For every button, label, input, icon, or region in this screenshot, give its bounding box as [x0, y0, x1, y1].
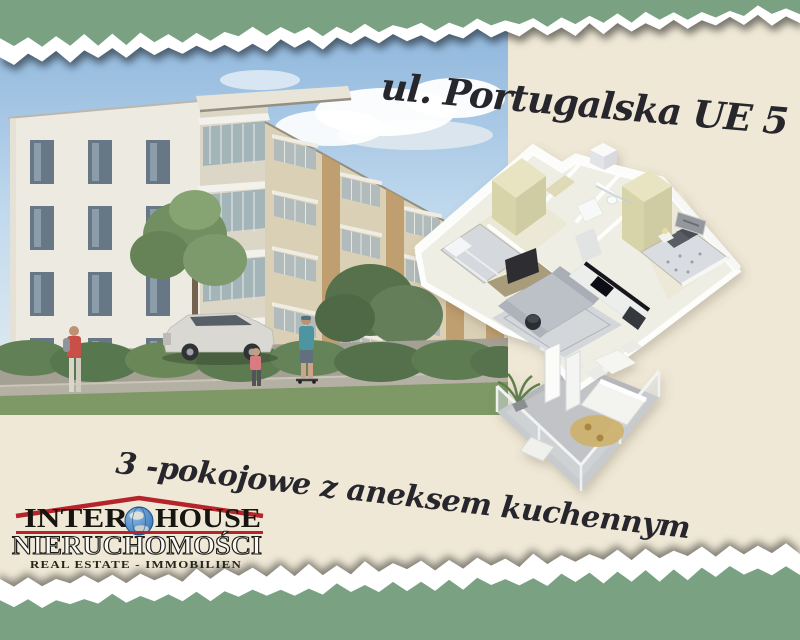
logo-line2: NIERUCHOMOŚCI [12, 531, 262, 560]
real-estate-flyer: ul. Portugalska UE 5 3 -pokojowe z aneks… [0, 0, 800, 640]
logo-brand-right: HOUSE [155, 503, 261, 533]
interhouse-logo: INTER HOUSE NIERUCHOMOŚCI REAL ESTATE - … [8, 494, 280, 580]
logo-brand-left: INTER [24, 503, 129, 533]
logo-line3: REAL ESTATE - IMMOBILIEN [30, 560, 242, 571]
building-photo [0, 14, 530, 415]
